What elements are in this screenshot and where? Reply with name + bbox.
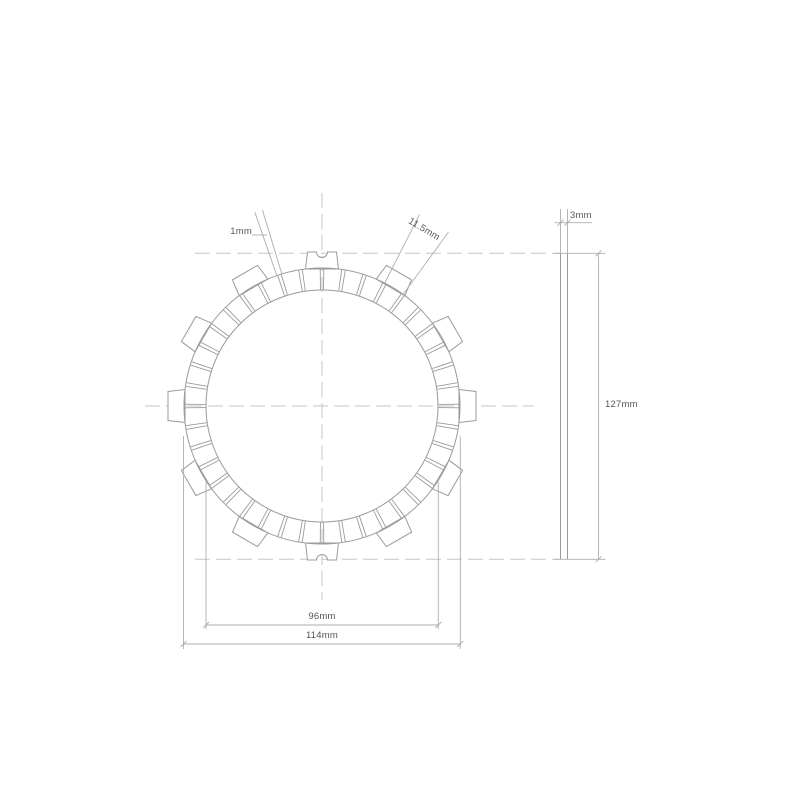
- tab: [180, 460, 211, 497]
- tab: [432, 460, 463, 497]
- centerlines: [145, 193, 559, 600]
- tab: [432, 315, 463, 352]
- side-view-outline: [561, 253, 568, 559]
- tab-notched: [306, 252, 339, 269]
- tab: [231, 264, 268, 295]
- dim-label-thickness: 3mm: [570, 210, 592, 221]
- tab: [376, 264, 413, 295]
- dim-label-slot-width: 1mm: [212, 226, 252, 237]
- tab: [376, 516, 413, 547]
- drawing-sheet: 1mm 11.5mm 3mm 127mm 96mm 114mm: [0, 0, 800, 800]
- tab: [180, 315, 211, 352]
- clutch-plate-technical-drawing: [0, 0, 800, 800]
- dim-label-inner-ring-diameter: 96mm: [292, 611, 352, 622]
- tab: [168, 390, 185, 423]
- dim-label-friction-ring-diameter: 114mm: [292, 630, 352, 641]
- tab: [231, 516, 268, 547]
- tab: [459, 390, 476, 423]
- dim-label-overall-diameter: 127mm: [605, 399, 638, 410]
